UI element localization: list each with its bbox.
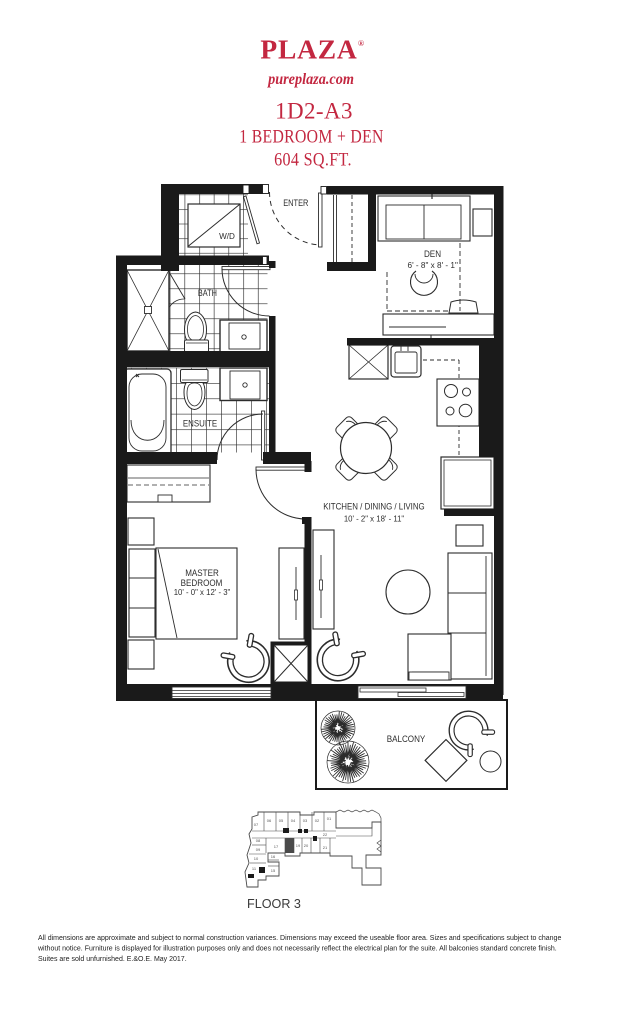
svg-text:20: 20 bbox=[304, 843, 309, 848]
svg-text:pureplaza.com: pureplaza.com bbox=[266, 72, 354, 89]
svg-text:FLOOR 3: FLOOR 3 bbox=[247, 897, 301, 911]
svg-text:06: 06 bbox=[267, 818, 272, 823]
svg-text:15: 15 bbox=[271, 868, 276, 873]
svg-text:ENTER: ENTER bbox=[283, 197, 308, 208]
svg-text:BALCONY: BALCONY bbox=[387, 733, 426, 744]
svg-text:17: 17 bbox=[274, 844, 279, 849]
svg-text:10: 10 bbox=[254, 856, 259, 861]
svg-text:PLAZA: PLAZA bbox=[260, 34, 357, 65]
svg-text:19: 19 bbox=[296, 843, 301, 848]
svg-text:W/D: W/D bbox=[219, 231, 235, 241]
svg-text:07: 07 bbox=[254, 822, 259, 827]
svg-text:1D2-A3: 1D2-A3 bbox=[275, 99, 353, 124]
svg-text:22: 22 bbox=[323, 832, 328, 837]
svg-text:®: ® bbox=[358, 39, 364, 48]
svg-text:09: 09 bbox=[256, 847, 261, 852]
svg-text:DEN: DEN bbox=[424, 248, 441, 259]
svg-text:02: 02 bbox=[315, 818, 320, 823]
svg-text:01: 01 bbox=[327, 816, 332, 821]
svg-text:1 BEDROOM + DEN: 1 BEDROOM + DEN bbox=[239, 126, 383, 146]
svg-text:16: 16 bbox=[271, 854, 276, 859]
svg-text:03: 03 bbox=[303, 818, 308, 823]
svg-text:All dimensions are approximate: All dimensions are approximate and subje… bbox=[38, 935, 561, 942]
svg-text:05: 05 bbox=[279, 818, 284, 823]
svg-text:BEDROOM: BEDROOM bbox=[181, 577, 223, 588]
svg-text:without notice. Furniture is d: without notice. Furniture is displayed f… bbox=[37, 946, 557, 953]
svg-text:10' - 0" x 12' - 3": 10' - 0" x 12' - 3" bbox=[174, 588, 231, 597]
svg-text:6' - 8" x 8' - 1": 6' - 8" x 8' - 1" bbox=[408, 261, 458, 270]
svg-text:10' - 2" x 18' - 11": 10' - 2" x 18' - 11" bbox=[344, 515, 405, 524]
svg-text:21: 21 bbox=[323, 845, 328, 850]
svg-text:BATH: BATH bbox=[198, 287, 217, 298]
svg-text:08: 08 bbox=[256, 838, 261, 843]
svg-text:04: 04 bbox=[291, 818, 296, 823]
svg-text:KITCHEN / DINING / LIVING: KITCHEN / DINING / LIVING bbox=[323, 501, 425, 512]
svg-text:Suites are sold unfurnished. E: Suites are sold unfurnished. E.&O.E. May… bbox=[38, 956, 187, 963]
svg-text:604 SQ.FT.: 604 SQ.FT. bbox=[274, 149, 352, 169]
svg-text:ENSUITE: ENSUITE bbox=[183, 418, 217, 429]
